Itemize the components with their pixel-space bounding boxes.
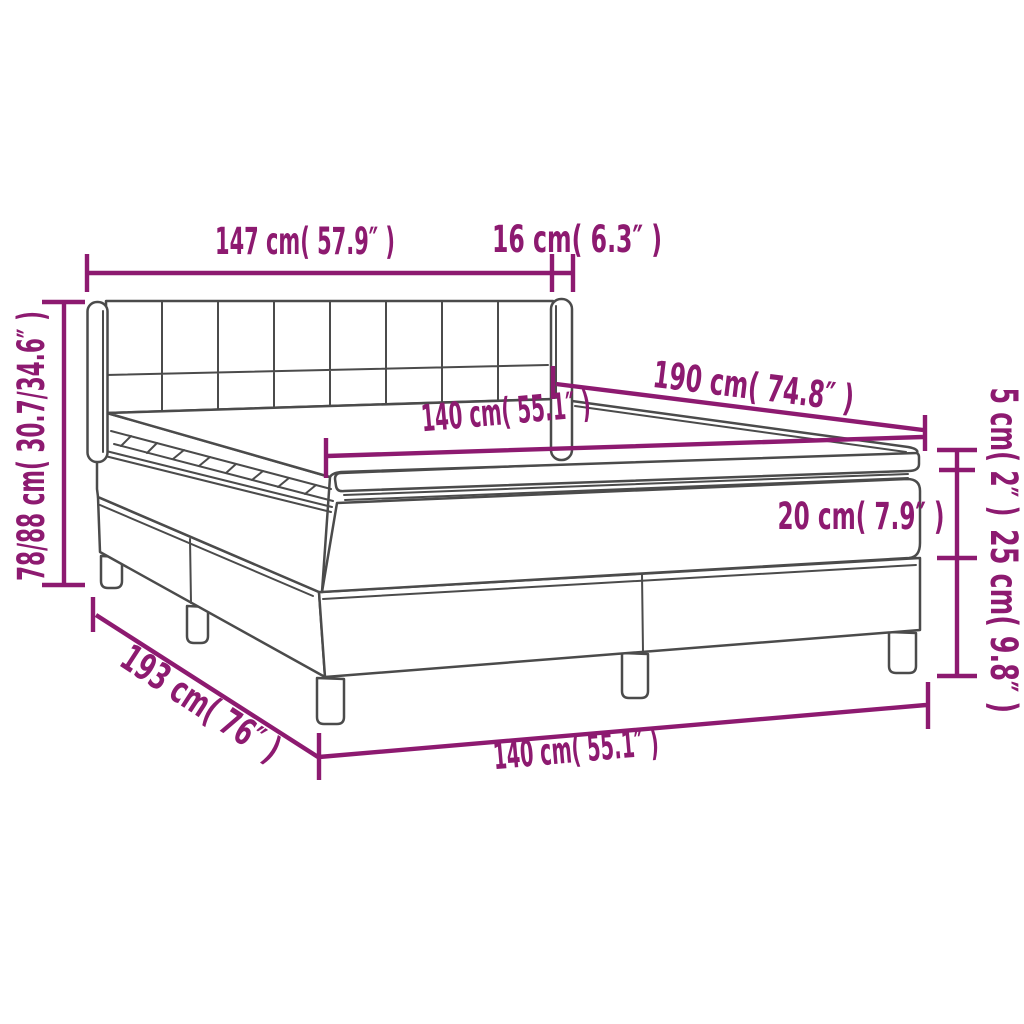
- dim-right-height-stack-line: [937, 450, 977, 676]
- leg-foot-middle: [622, 653, 648, 698]
- label-headboard-width: 147 cm( 57.9″ ): [215, 220, 395, 263]
- bed-dimension-drawing: 147 cm( 57.9″ ) 16 cm( 6.3″ ) 78/88 cm( …: [0, 0, 1024, 1024]
- label-wing-depth: 16 cm( 6.3″ ): [492, 218, 662, 261]
- label-base-width: 140 cm( 55.1″ ): [491, 721, 660, 778]
- headboard-wing-left: [88, 302, 108, 462]
- leg-foot-left: [317, 678, 344, 724]
- leg-foot-right: [889, 632, 916, 673]
- label-mattress-height: 20 cm( 7.9″ ): [778, 495, 945, 538]
- label-base-length: 193 cm( 76″ ): [113, 636, 289, 771]
- label-base-height: 25 cm( 9.8″ ): [982, 529, 1024, 713]
- label-headboard-height: 78/88 cm( 30.7/34.6″ ): [10, 311, 53, 581]
- dimension-diagram: 147 cm( 57.9″ ) 16 cm( 6.3″ ) 78/88 cm( …: [0, 0, 1024, 1024]
- label-topper-height: 5 cm( 2″ ): [982, 388, 1024, 517]
